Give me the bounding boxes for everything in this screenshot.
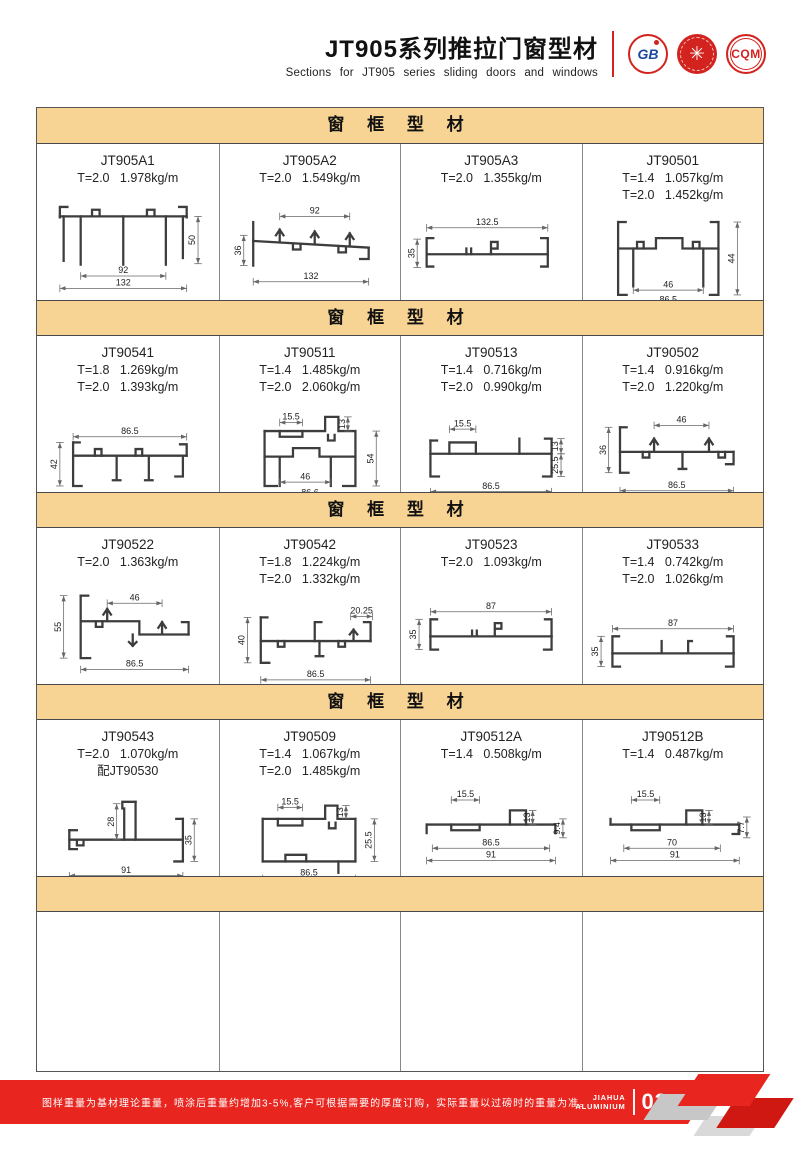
profile-spec: T=1.4 0.487kg/m <box>583 746 764 763</box>
section-header <box>37 876 763 912</box>
profile-cell-jt90511: JT90511T=1.4 1.485kg/mT=2.0 2.060kg/m15.… <box>219 336 401 492</box>
profile-spec: T=2.0 1.070kg/m <box>37 746 219 763</box>
profile-code: JT90511 <box>220 344 401 362</box>
profile-cell-jt90533: JT90533T=1.4 0.742kg/mT=2.0 1.026kg/m873… <box>582 528 764 684</box>
dimension-label: 25.5 <box>363 831 373 849</box>
dimension-label: 46 <box>663 279 673 289</box>
dimension-label: 87 <box>668 618 678 628</box>
profile-cell-jt90513: JT90513T=1.4 0.716kg/mT=2.0 0.990kg/m15.… <box>400 336 582 492</box>
section-header: 窗 框 型 材 <box>37 300 763 336</box>
section-title: 窗 框 型 材 <box>327 500 472 519</box>
profile-code: JT90541 <box>37 344 219 362</box>
dimension-label: 91 <box>486 850 496 860</box>
quality-stamp-icon: ✳ <box>677 34 717 74</box>
profile-code: JT905A3 <box>401 152 582 170</box>
profile-cell-jt90541: JT90541T=1.8 1.269kg/mT=2.0 1.393kg/m86.… <box>37 336 219 492</box>
dimension-label: 35 <box>183 835 193 845</box>
dimension-label: 92 <box>309 206 319 216</box>
profile-drawing-jt90512a: 15.5139.486.591 <box>403 764 579 870</box>
profile-spec: T=1.4 1.057kg/m <box>583 170 764 187</box>
profile-spec: T=2.0 0.990kg/m <box>401 379 582 396</box>
profile-code: JT90513 <box>401 344 582 362</box>
profile-cell-jt90522: JT90522T=2.0 1.363kg/m554686.5 <box>37 528 219 684</box>
profile-spec: T=2.0 2.060kg/m <box>220 379 401 396</box>
profile-cell-jt905a1: JT905A1T=2.0 1.978kg/m5092132 <box>37 144 219 300</box>
stamp-star-icon: ✳ <box>689 43 705 66</box>
dimension-label: 35 <box>408 630 418 640</box>
profile-spec: T=2.0 1.332kg/m <box>220 571 401 588</box>
profile-drawing-jt905a3: 132.535 <box>403 188 579 294</box>
page-header: JT905系列推拉门窗型材 Sections for JT905 series … <box>0 0 800 82</box>
section-header: 窗 框 型 材 <box>37 492 763 528</box>
profile-code: JT90509 <box>220 728 401 746</box>
profile-code: JT90542 <box>220 536 401 554</box>
dimension-label: 86.6 <box>301 487 319 492</box>
profile-drawing-jt90541: 86.542 <box>40 397 216 492</box>
dimension-label: 40 <box>236 635 246 645</box>
dimension-label: 132.5 <box>476 217 498 227</box>
profile-code: JT905A2 <box>220 152 401 170</box>
header-divider <box>612 31 614 77</box>
dimension-label: 35 <box>407 248 417 258</box>
profile-cell-jt90543: JT90543T=2.0 1.070kg/m配JT90530283591 <box>37 720 219 876</box>
dimension-label: 15.5 <box>454 418 472 428</box>
profile-code: JT90543 <box>37 728 219 746</box>
profile-row: JT905A1T=2.0 1.978kg/m5092132JT905A2T=2.… <box>37 144 763 300</box>
section-header: 窗 框 型 材 <box>37 108 763 144</box>
profile-drawing-jt90502: 463686.5 <box>585 397 761 492</box>
profile-spec: T=1.4 0.716kg/m <box>401 362 582 379</box>
profile-cell-jt90523: JT90523T=2.0 1.093kg/m8735 <box>400 528 582 684</box>
dimension-label: 86.5 <box>659 294 677 300</box>
dimension-label: 13 <box>522 813 532 823</box>
empty-cell <box>582 912 764 1071</box>
profile-spec: T=2.0 1.355kg/m <box>401 170 582 187</box>
section-title: 窗 框 型 材 <box>327 692 472 711</box>
profile-cell-jt90512b: JT90512BT=1.4 0.487kg/m15.5137.77091 <box>582 720 764 876</box>
gb-certification-logo: GB <box>628 34 668 74</box>
profile-cell-jt905a2: JT905A2T=2.0 1.549kg/m9236132 <box>219 144 401 300</box>
profile-spec: T=2.0 1.026kg/m <box>583 571 764 588</box>
dimension-label: 36 <box>598 445 608 455</box>
dimension-label: 15.5 <box>637 789 655 799</box>
profile-drawing-jt90509: 15.51325.586.5 <box>222 781 398 876</box>
empty-cell <box>219 912 401 1071</box>
profile-code: JT90512A <box>401 728 582 746</box>
page-footer: 图样重量为基材理论重量，喷涂后重量约增加3-5%,客户可根据需要的厚度订购，实际… <box>0 1072 800 1141</box>
dimension-label: 86.5 <box>307 669 325 679</box>
footer-note: 图样重量为基材理论重量，喷涂后重量约增加3-5%,客户可根据需要的厚度订购，实际… <box>42 1095 590 1110</box>
dimension-label: 55 <box>53 622 63 632</box>
empty-cell <box>400 912 582 1071</box>
profile-drawing-jt90543: 283591 <box>40 781 216 876</box>
dimension-label: 13 <box>337 419 347 429</box>
profile-spec: T=1.4 1.485kg/m <box>220 362 401 379</box>
profile-spec: 配JT90530 <box>37 763 219 780</box>
profile-spec: T=1.4 0.742kg/m <box>583 554 764 571</box>
profile-cell-jt90509: JT90509T=1.4 1.067kg/mT=2.0 1.485kg/m15.… <box>219 720 401 876</box>
profile-code: JT90501 <box>583 152 764 170</box>
dimension-label: 86.5 <box>126 659 143 669</box>
profile-spec: T=1.8 1.269kg/m <box>37 362 219 379</box>
profile-cell-jt90502: JT90502T=1.4 0.916kg/mT=2.0 1.220kg/m463… <box>582 336 764 492</box>
profile-row <box>37 912 763 1071</box>
dimension-label: 132 <box>116 278 131 288</box>
profile-spec: T=2.0 1.549kg/m <box>220 170 401 187</box>
profile-spec: T=2.0 1.363kg/m <box>37 554 219 571</box>
footer-bar: 图样重量为基材理论重量，喷涂后重量约增加3-5%,客户可根据需要的厚度订购，实际… <box>0 1080 714 1124</box>
profile-row: JT90543T=2.0 1.070kg/m配JT90530283591JT90… <box>37 720 763 876</box>
dimension-label: 13 <box>550 441 560 451</box>
dimension-label: 50 <box>187 235 197 245</box>
profile-drawing-jt90501: 444686.5 <box>585 205 761 300</box>
dimension-label: 54 <box>365 453 375 463</box>
dimension-label: 86.5 <box>121 426 138 436</box>
profile-spec: T=1.4 1.067kg/m <box>220 746 401 763</box>
dimension-label: 15.5 <box>282 412 300 422</box>
dimension-label: 35 <box>590 646 600 656</box>
profile-spec: T=2.0 1.452kg/m <box>583 187 764 204</box>
profile-cell-jt90542: JT90542T=1.8 1.224kg/mT=2.0 1.332kg/m402… <box>219 528 401 684</box>
dimension-label: 132 <box>303 271 318 281</box>
dimension-label: 91 <box>670 850 680 860</box>
section-title: 窗 框 型 材 <box>327 308 472 327</box>
profile-table: 窗 框 型 材JT905A1T=2.0 1.978kg/m5092132JT90… <box>36 107 764 1072</box>
profile-drawing-jt90511: 15.513544686.6 <box>222 397 398 492</box>
profile-spec: T=1.8 1.224kg/m <box>220 554 401 571</box>
profile-drawing-jt90542: 4020.2586.5 <box>222 589 398 684</box>
profile-spec: T=1.4 0.508kg/m <box>401 746 582 763</box>
dimension-label: 86.5 <box>483 481 501 491</box>
profile-drawing-jt90533: 8735 <box>585 589 761 684</box>
cqm-certification-logo: CQM <box>726 34 766 74</box>
profile-spec: T=1.4 0.916kg/m <box>583 362 764 379</box>
dimension-label: 86.5 <box>483 837 501 847</box>
gb-logo-text: GB <box>638 46 659 62</box>
dimension-label: 70 <box>667 837 677 847</box>
dimension-label: 15.5 <box>281 797 299 807</box>
profile-spec: T=2.0 1.220kg/m <box>583 379 764 396</box>
profile-drawing-jt90513: 15.51325.586.5 <box>403 397 579 492</box>
dimension-label: 91 <box>121 865 131 875</box>
profile-cell-jt90501: JT90501T=1.4 1.057kg/mT=2.0 1.452kg/m444… <box>582 144 764 300</box>
profile-spec: T=2.0 1.978kg/m <box>37 170 219 187</box>
cqm-logo-text: CQM <box>731 47 761 61</box>
profile-cell-jt90512a: JT90512AT=1.4 0.508kg/m15.5139.486.591 <box>400 720 582 876</box>
dimension-label: 13 <box>698 813 708 823</box>
profile-spec: T=2.0 1.393kg/m <box>37 379 219 396</box>
brand-separator <box>633 1089 635 1115</box>
dimension-label: 87 <box>486 601 496 611</box>
section-header: 窗 框 型 材 <box>37 684 763 720</box>
dimension-label: 20.25 <box>350 606 372 616</box>
dimension-label: 28 <box>106 817 116 827</box>
dimension-label: 42 <box>49 459 59 469</box>
brand-name-bottom: ALUMINIUM <box>575 1102 625 1111</box>
empty-cell <box>37 912 219 1071</box>
profile-drawing-jt90523: 8735 <box>403 572 579 678</box>
certification-logos: GB ✳ CQM <box>628 34 766 74</box>
profile-code: JT90523 <box>401 536 582 554</box>
dimension-label: 46 <box>300 471 310 481</box>
profile-spec: T=2.0 1.485kg/m <box>220 763 401 780</box>
profile-spec: T=2.0 1.093kg/m <box>401 554 582 571</box>
profile-drawing-jt905a2: 9236132 <box>222 188 398 294</box>
profile-drawing-jt905a1: 5092132 <box>40 188 216 294</box>
dimension-label: 15.5 <box>457 789 475 799</box>
profile-code: JT90512B <box>583 728 764 746</box>
dimension-label: 13 <box>335 807 345 817</box>
brand-name-top: JIAHUA <box>575 1093 625 1102</box>
brand-name: JIAHUA ALUMINIUM <box>575 1093 625 1111</box>
dimension-label: 7.7 <box>736 821 746 834</box>
page-title: JT905系列推拉门窗型材 <box>286 29 598 64</box>
dimension-label: 86.5 <box>668 480 686 490</box>
section-title: 窗 框 型 材 <box>327 115 472 134</box>
title-block: JT905系列推拉门窗型材 Sections for JT905 series … <box>286 29 598 79</box>
profile-code: JT90522 <box>37 536 219 554</box>
dimension-label: 92 <box>118 265 128 275</box>
dimension-label: 36 <box>233 246 243 256</box>
dimension-label: 25.5 <box>550 456 560 474</box>
dimension-label: 46 <box>129 592 139 602</box>
profile-drawing-jt90512b: 15.5137.77091 <box>585 764 761 870</box>
profile-code: JT905A1 <box>37 152 219 170</box>
dimension-label: 9.4 <box>552 822 562 835</box>
dimension-label: 86.5 <box>300 868 318 876</box>
profile-row: JT90541T=1.8 1.269kg/mT=2.0 1.393kg/m86.… <box>37 336 763 492</box>
dimension-label: 46 <box>676 415 686 425</box>
profile-cell-jt905a3: JT905A3T=2.0 1.355kg/m132.535 <box>400 144 582 300</box>
dimension-label: 44 <box>726 253 736 263</box>
profile-code: JT90533 <box>583 536 764 554</box>
profile-drawing-jt90522: 554686.5 <box>40 572 216 678</box>
page-subtitle: Sections for JT905 series sliding doors … <box>286 67 598 79</box>
profile-row: JT90522T=2.0 1.363kg/m554686.5JT90542T=1… <box>37 528 763 684</box>
profile-code: JT90502 <box>583 344 764 362</box>
